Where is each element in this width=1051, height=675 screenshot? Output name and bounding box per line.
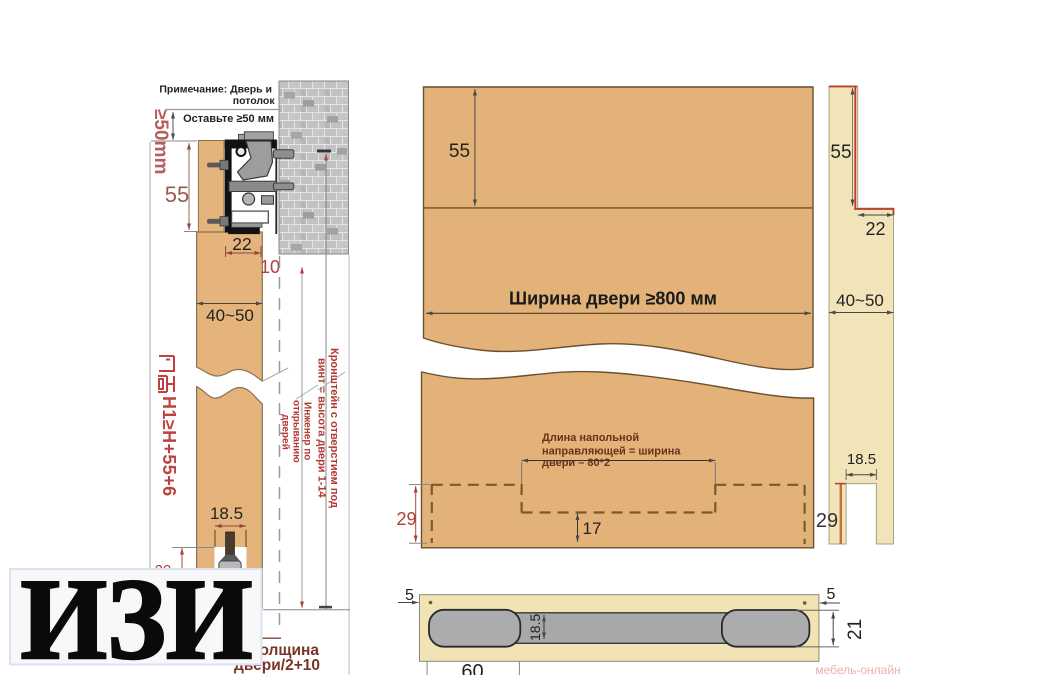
svg-text:22: 22	[865, 219, 885, 239]
svg-text:10: 10	[260, 257, 280, 277]
svg-text:Оставьте ≥50 мм: Оставьте ≥50 мм	[183, 113, 274, 125]
svg-text:55: 55	[830, 142, 851, 163]
svg-text:40~50: 40~50	[836, 291, 884, 310]
svg-text:60: 60	[461, 661, 483, 675]
svg-text:мебель-онлайн: мебель-онлайн	[815, 663, 900, 675]
svg-text:21: 21	[845, 619, 866, 640]
svg-text:5: 5	[405, 587, 414, 604]
svg-text:≥50mm: ≥50mm	[150, 109, 171, 174]
svg-text:Ширина двери ≥800 мм: Ширина двери ≥800 мм	[509, 289, 717, 309]
svg-text:55: 55	[165, 182, 189, 207]
svg-text:двери – 80*2: двери – 80*2	[542, 457, 610, 469]
svg-text:дверей: дверей	[280, 414, 291, 450]
svg-text:40~50: 40~50	[206, 306, 254, 325]
svg-text:Длина напольной: Длина напольной	[542, 432, 639, 444]
svg-text:55: 55	[449, 141, 470, 162]
svg-text:18.5: 18.5	[210, 504, 243, 523]
svg-text:18.5: 18.5	[847, 451, 876, 468]
svg-text:22: 22	[232, 234, 251, 254]
svg-text:ИЗИ: ИЗИ	[21, 556, 253, 675]
svg-text:потолок: потолок	[233, 95, 276, 107]
svg-text:5: 5	[827, 586, 836, 603]
svg-text:29: 29	[816, 510, 838, 532]
svg-text:29: 29	[396, 509, 416, 529]
svg-text:Кронштейн с отверстием под: Кронштейн с отверстием под	[328, 348, 340, 508]
svg-text:открыванию: открыванию	[291, 400, 302, 463]
svg-text:18.5: 18.5	[527, 614, 543, 641]
svg-text:Инженер по: Инженер по	[302, 402, 313, 460]
svg-text:17: 17	[583, 519, 602, 538]
svg-text:H1≥H+55+6: H1≥H+55+6	[159, 396, 179, 497]
svg-text:направляющей = ширина: направляющей = ширина	[542, 446, 681, 458]
svg-text:Примечание: Дверь и: Примечание: Дверь и	[159, 84, 272, 96]
svg-text:винт = высота двери 1-14: винт = высота двери 1-14	[315, 358, 327, 499]
